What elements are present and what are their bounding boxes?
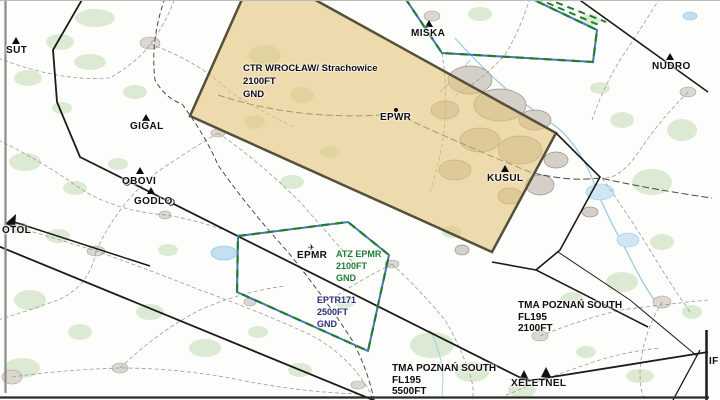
map-artwork: ✈ — [0, 0, 720, 400]
eptr171-name: EPTR171 — [317, 294, 356, 306]
atz-lower-limit: GND — [336, 272, 381, 284]
epwr-airport-label: EPWR — [380, 112, 411, 123]
eptr171-label: EPTR171 2500FT GND — [317, 294, 356, 330]
waypoint-label-sut: SUT — [6, 45, 27, 56]
eptr171-upper-limit: 2500FT — [317, 306, 356, 318]
tma-bottom-lower-limit: 5500FT — [392, 386, 496, 398]
tma-east-upper-limit: FL195 — [518, 312, 622, 324]
waypoint-label-kusul: KUSUL — [487, 173, 523, 184]
waypoint-label-nudro: NUDRO — [652, 61, 691, 72]
waypoint-label-obovi: OBOVI — [122, 176, 156, 187]
ctr-upper-limit: 2100FT — [243, 75, 378, 88]
gigal-triangle-icon — [142, 114, 150, 121]
tma-poznan-south-bottom-label: TMA POZNAŃ SOUTH FL195 5500FT — [392, 363, 496, 398]
waypoint-label-miska: MIŚKA — [411, 28, 445, 39]
ctr-lower-limit: GND — [243, 88, 378, 101]
ctr-wroclaw-label: CTR WROCŁAW/ Strachowice 2100FT GND — [243, 62, 378, 101]
map-canvas[interactable]: ✈ CTR WROCŁAW/ Strachowice 2100FT GND AT… — [0, 0, 720, 400]
tma-bottom-upper-limit: FL195 — [392, 375, 496, 387]
atz-epmr-label: ATZ EPMR 2100FT GND — [336, 248, 381, 284]
waypoint-label-xeletnel: XELETNEL — [511, 378, 566, 389]
waypoint-label-otol: OTOL — [2, 225, 31, 236]
tma-east-name: TMA POZNAŃ SOUTH — [518, 300, 622, 312]
waypoint-label-gigal: GIGAL — [130, 121, 164, 132]
tma-bottom-name: TMA POZNAŃ SOUTH — [392, 363, 496, 375]
tma-poznan-south-east-label: TMA POZNAŃ SOUTH FL195 2100FT — [518, 300, 622, 335]
epmr-airport-label: EPMR — [297, 250, 327, 261]
eptr171-lower-limit: GND — [317, 318, 356, 330]
ctr-name: CTR WROCŁAW/ Strachowice — [243, 62, 378, 75]
waypoint-label-godlo: GODLO — [134, 196, 173, 207]
tma-east-lower-limit: 2100FT — [518, 323, 622, 335]
sut-triangle-icon — [12, 37, 20, 44]
nudro-triangle-icon — [666, 53, 674, 60]
atz-name: ATZ EPMR — [336, 248, 381, 260]
xeletnel-arrow2-icon — [541, 367, 551, 377]
ctr-wroclaw-polygon — [190, 0, 556, 252]
atz-upper-limit: 2100FT — [336, 260, 381, 272]
waypoint-label-if: IF — [709, 356, 719, 367]
obovi-triangle-icon — [136, 167, 144, 174]
